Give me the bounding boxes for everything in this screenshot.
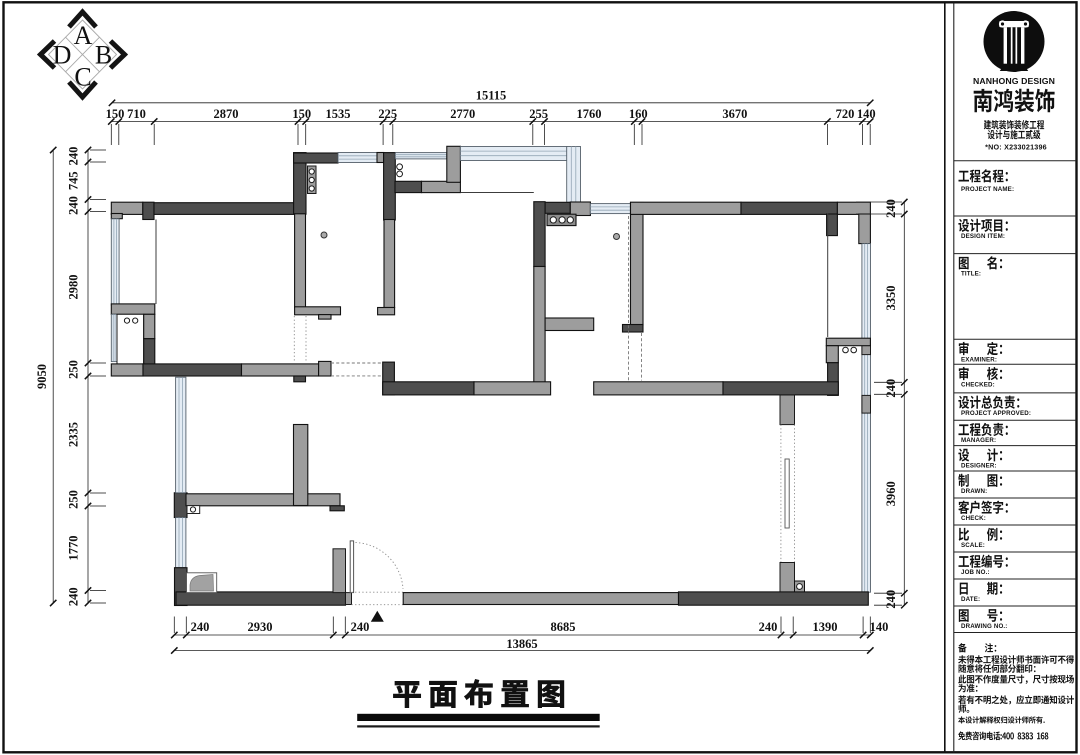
svg-text:DRAWN:: DRAWN:: [961, 488, 987, 495]
svg-text:CHECK:: CHECK:: [961, 515, 986, 522]
svg-text:255: 255: [529, 107, 548, 121]
svg-text:1390: 1390: [813, 620, 838, 634]
svg-text:2770: 2770: [450, 107, 475, 121]
svg-text:2980: 2980: [67, 275, 81, 300]
svg-text:250: 250: [67, 490, 81, 509]
svg-text:DESIGN ITEM:: DESIGN ITEM:: [961, 233, 1005, 240]
svg-text:B: B: [95, 41, 112, 70]
svg-text:DATE:: DATE:: [961, 596, 980, 603]
svg-text:*NO: X233021396: *NO: X233021396: [985, 143, 1047, 152]
svg-text:3960: 3960: [884, 481, 898, 506]
svg-text:2335: 2335: [67, 422, 81, 447]
svg-text:150: 150: [106, 107, 125, 121]
svg-text:SCALE:: SCALE:: [961, 542, 985, 549]
svg-text:710: 710: [127, 107, 146, 121]
svg-text:9050: 9050: [35, 364, 49, 389]
svg-text:A: A: [74, 21, 93, 50]
svg-text:CHECKED:: CHECKED:: [961, 381, 995, 388]
svg-text:NANHONG DESIGN: NANHONG DESIGN: [973, 76, 1055, 86]
svg-text:3670: 3670: [722, 107, 747, 121]
svg-text:15115: 15115: [476, 89, 507, 103]
svg-text:DESIGNER:: DESIGNER:: [961, 463, 997, 470]
svg-text:720: 720: [836, 107, 855, 121]
svg-text:240: 240: [191, 620, 210, 634]
svg-text:JOB NO.:: JOB NO.:: [961, 569, 990, 576]
svg-text:160: 160: [629, 107, 648, 121]
svg-text:240: 240: [884, 379, 898, 398]
svg-text:8685: 8685: [551, 620, 576, 634]
svg-text:2930: 2930: [248, 620, 273, 634]
svg-text:1770: 1770: [67, 536, 81, 561]
svg-text:250: 250: [67, 360, 81, 379]
svg-text:745: 745: [67, 171, 81, 190]
svg-text:DRAWING NO.:: DRAWING NO.:: [961, 623, 1007, 630]
svg-text:240: 240: [884, 199, 898, 218]
svg-text:240: 240: [67, 147, 81, 166]
svg-text:2870: 2870: [214, 107, 239, 121]
svg-text:140: 140: [857, 107, 876, 121]
svg-text:140: 140: [870, 620, 889, 634]
svg-text:C: C: [74, 63, 91, 92]
svg-text:240: 240: [884, 590, 898, 609]
svg-text:225: 225: [378, 107, 397, 121]
svg-text:PROJECT NAME:: PROJECT NAME:: [961, 186, 1014, 193]
svg-text:D: D: [53, 41, 72, 70]
svg-text:1535: 1535: [326, 107, 351, 121]
svg-text:240: 240: [67, 196, 81, 215]
svg-text:13865: 13865: [506, 637, 537, 651]
svg-text:TITLE:: TITLE:: [961, 271, 981, 278]
svg-text:3350: 3350: [884, 286, 898, 311]
svg-text:MANAGER:: MANAGER:: [961, 437, 996, 444]
svg-text:240: 240: [759, 620, 778, 634]
svg-text:PROJECT APPROVED:: PROJECT APPROVED:: [961, 410, 1031, 417]
svg-text:240: 240: [67, 587, 81, 606]
svg-text:EXAMINER:: EXAMINER:: [961, 356, 997, 363]
svg-text:1760: 1760: [577, 107, 602, 121]
svg-text:150: 150: [292, 107, 311, 121]
svg-text:240: 240: [351, 620, 370, 634]
